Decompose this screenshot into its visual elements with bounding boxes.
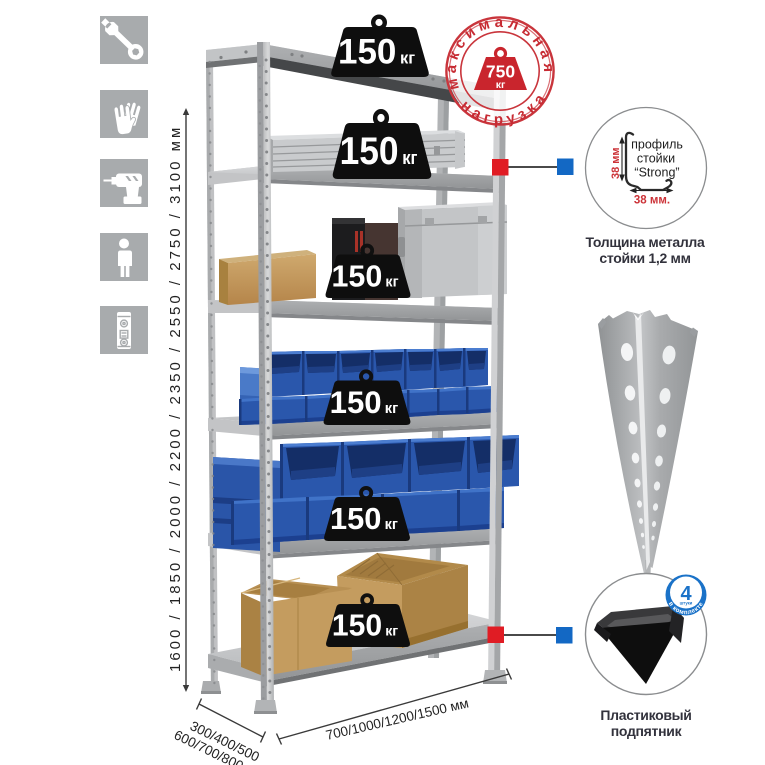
- svg-text:Пластиковый: Пластиковый: [600, 707, 691, 723]
- svg-text:стойки: стойки: [637, 152, 675, 166]
- svg-text:штуки: штуки: [680, 601, 693, 606]
- svg-text:кг: кг: [496, 79, 506, 91]
- svg-text:38 мм: 38 мм: [610, 147, 622, 179]
- svg-text:подпятник: подпятник: [611, 723, 683, 739]
- svg-text:стойки 1,2 мм: стойки 1,2 мм: [599, 250, 690, 266]
- svg-text:Толщина металла: Толщина металла: [586, 234, 706, 250]
- svg-text:профиль: профиль: [631, 138, 683, 152]
- svg-text:38 мм.: 38 мм.: [634, 195, 670, 207]
- svg-text:1600 / 1850 / 2000 / 2200 / 23: 1600 / 1850 / 2000 / 2200 / 2350 / 2550 …: [167, 125, 184, 672]
- svg-text:“Strong”: “Strong”: [634, 166, 679, 180]
